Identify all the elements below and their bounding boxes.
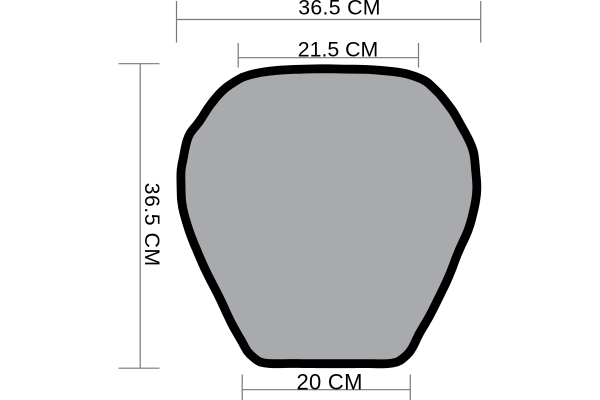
svg-text:21.5 CM: 21.5 CM [298, 37, 379, 61]
svg-text:36.5 CM: 36.5 CM [140, 183, 164, 267]
svg-text:20 CM: 20 CM [296, 369, 362, 394]
svg-text:36.5 CM: 36.5 CM [298, 0, 381, 20]
